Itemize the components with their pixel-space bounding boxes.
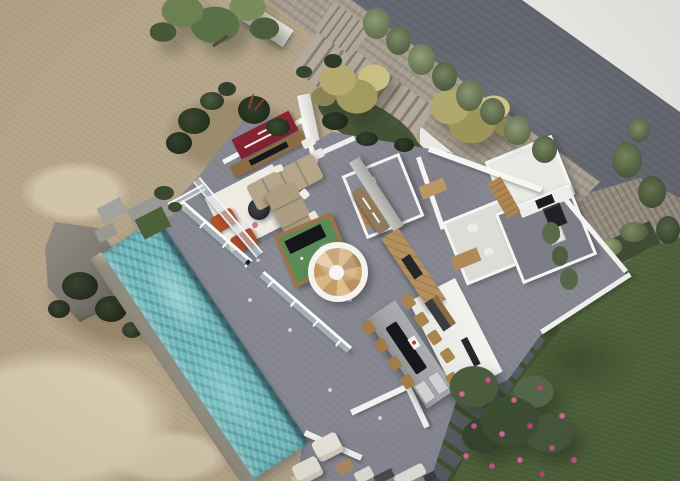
bamboo-clump (612, 142, 642, 178)
bamboo-clump (656, 216, 680, 244)
tray-item (411, 340, 417, 346)
aerial-villa-render (0, 0, 680, 481)
sideboard-handle (362, 197, 371, 210)
courtyard-shrub (266, 118, 290, 136)
courtyard-shrub (356, 132, 378, 146)
bamboo-clump (408, 44, 435, 75)
scrub-bush (48, 300, 70, 318)
path-shrub (168, 202, 182, 212)
sideboard-handle (372, 212, 380, 223)
bamboo-clump (628, 118, 650, 142)
bamboo-clump (480, 98, 505, 125)
bamboo-clump (432, 62, 457, 91)
scrub-bush (62, 272, 98, 300)
billiard-ball (300, 256, 304, 260)
bamboo-clump (504, 116, 531, 145)
west-shrub (178, 108, 210, 134)
west-shrub (166, 132, 192, 154)
courtyard-shrub (324, 54, 342, 68)
olive-tree (312, 58, 398, 120)
shade-tree (150, 0, 280, 60)
bamboo-clump (386, 26, 411, 55)
planter-shrub (620, 222, 648, 242)
courtyard-shrub (296, 66, 312, 78)
decor-item (252, 222, 258, 228)
courtyard-shrub (394, 138, 414, 152)
west-shrub (218, 82, 236, 96)
flower-blossoms (444, 364, 584, 480)
bamboo-clump (638, 176, 666, 208)
wing-side-shrub (552, 246, 568, 266)
bamboo-clump (456, 80, 483, 111)
west-shrub (200, 92, 224, 110)
wing-side-shrub (542, 222, 560, 244)
courtyard-shrub (322, 112, 348, 130)
wing-side-shrub (560, 268, 578, 290)
spiral-staircase (308, 242, 368, 302)
bamboo-clump (532, 136, 557, 163)
west-shrub (154, 186, 174, 200)
